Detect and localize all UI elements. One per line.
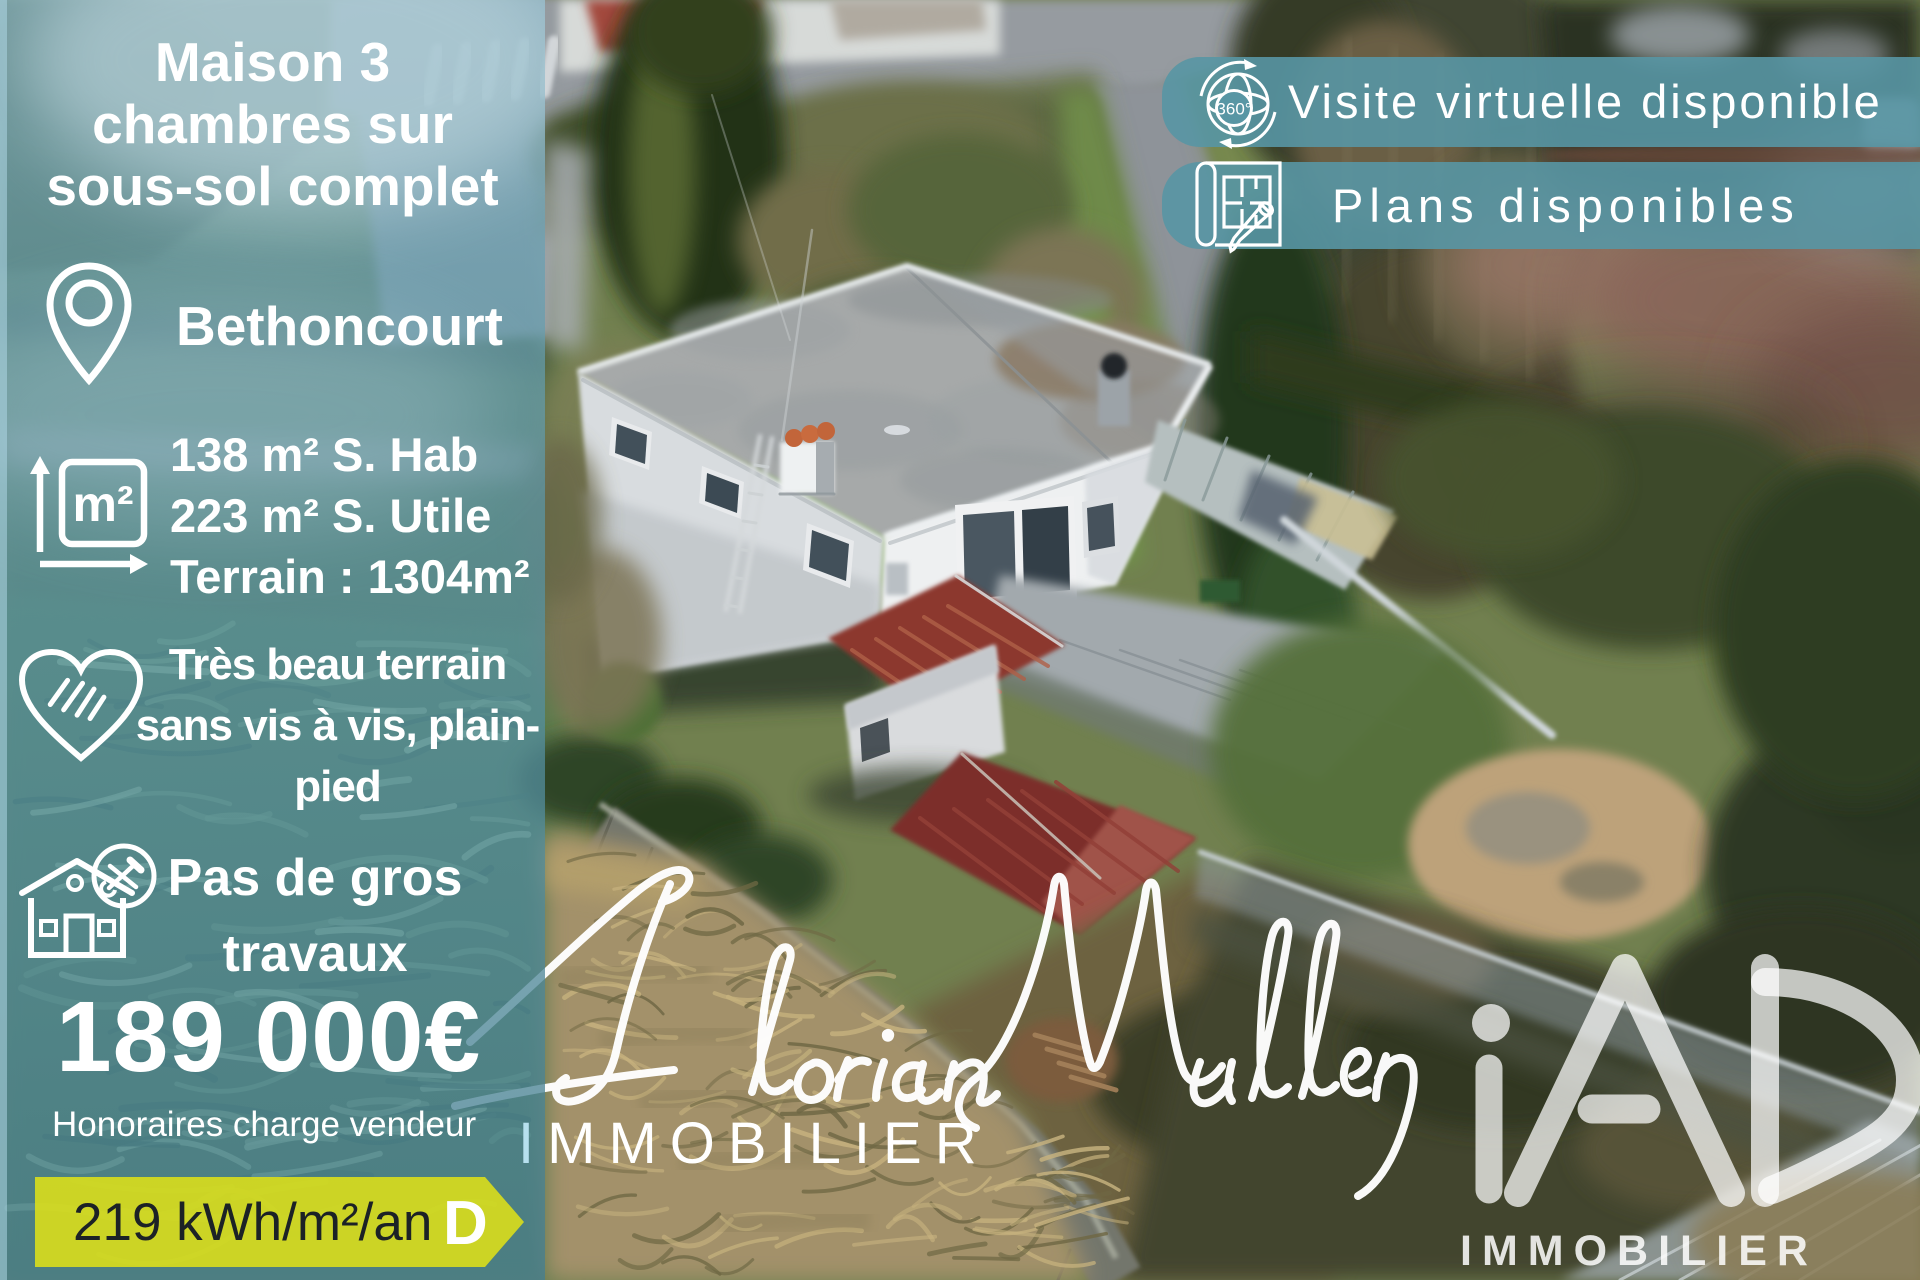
svg-text:360°: 360° — [1216, 100, 1251, 119]
svg-text:219 kWh/m²/an: 219 kWh/m²/an — [73, 1193, 432, 1252]
svg-text:m²: m² — [72, 476, 133, 532]
svg-text:IMMOBILIER: IMMOBILIER — [1460, 1227, 1818, 1275]
svg-text:D: D — [443, 1189, 488, 1258]
